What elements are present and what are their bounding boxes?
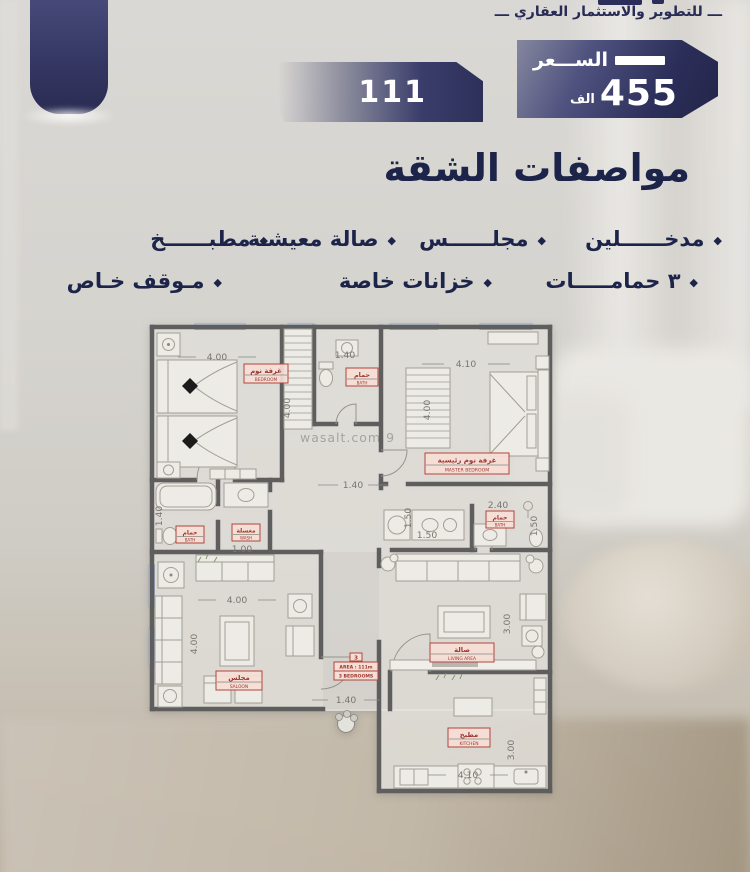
room-label-master: غرفة نوم رئيسية MASTER BEDROOM	[425, 453, 509, 474]
svg-text:BATH: BATH	[495, 523, 506, 528]
svg-text:SALOON: SALOON	[230, 684, 248, 690]
svg-text:حمام: حمام	[354, 371, 370, 379]
floor-plan: wasalt.com 9 غرفة نوم BEDROOM حمام BATH …	[140, 312, 570, 860]
svg-text:مغسلة: مغسلة	[236, 528, 256, 535]
feature-label: خزانات خاصة	[339, 269, 475, 293]
svg-text:غرفة نوم: غرفة نوم	[250, 367, 282, 375]
unit-number-badge: 111	[278, 62, 483, 122]
feature-private-tanks: ◆خزانات خاصة	[339, 269, 492, 293]
entrance-plant-icon	[336, 711, 358, 733]
feature-entrances: ◆مدخــــــلين	[585, 227, 722, 251]
diamond-bullet-icon: ◆	[714, 235, 722, 246]
svg-text:مجلس: مجلس	[228, 674, 250, 682]
room-label-bath-left: حمام BATH	[176, 526, 204, 543]
company-tagline: ـــ للتطوير والاستثمار العقاري ـــ	[495, 4, 722, 20]
svg-text:BATH: BATH	[357, 381, 368, 386]
room-label-living: صالة LIVING AREA	[430, 643, 494, 662]
svg-text:MASTER BEDROOM: MASTER BEDROOM	[445, 468, 489, 474]
svg-text:1.40: 1.40	[335, 350, 356, 361]
background-wall-strip	[0, 0, 18, 430]
feature-label: مـوقف خـاص	[67, 269, 205, 293]
feature-living-hall: ◆صالة معيشـة	[248, 227, 396, 251]
page-title: مواصفات الشقة	[384, 146, 691, 190]
feature-kitchen: ◆مطبــــــخ	[150, 227, 268, 251]
svg-text:غرفة نوم رئيسية: غرفة نوم رئيسية	[438, 457, 497, 465]
feature-majlis: ◆مجلــــــس	[419, 227, 546, 251]
svg-text:1.40: 1.40	[154, 506, 165, 527]
diamond-bullet-icon: ◆	[484, 277, 492, 288]
watermark: wasalt.com 9	[300, 430, 395, 445]
feature-label: مدخــــــلين	[585, 227, 704, 251]
svg-text:4.00: 4.00	[207, 352, 228, 363]
svg-text:4.00: 4.00	[227, 595, 248, 606]
svg-text:2.40: 2.40	[488, 500, 509, 511]
svg-text:1.40: 1.40	[343, 480, 364, 491]
room-label-kitchen: مطبخ KITCHEN	[448, 728, 490, 747]
feature-label: مجلــــــس	[419, 227, 528, 251]
svg-text:BATH: BATH	[185, 538, 196, 543]
svg-text:AREA : 111m: AREA : 111m	[339, 665, 372, 671]
svg-text:حمام: حمام	[493, 515, 508, 522]
svg-text:4.10: 4.10	[456, 359, 477, 370]
svg-text:4.00: 4.00	[422, 400, 433, 421]
room-label-saloon: مجلس SALOON	[216, 671, 262, 690]
feature-private-parking: ◆مـوقف خـاص	[67, 269, 222, 293]
diamond-bullet-icon: ◆	[538, 235, 546, 246]
feature-label: ٣ حمامـــــات	[545, 269, 680, 293]
svg-text:1.50: 1.50	[529, 516, 540, 537]
svg-text:حمام: حمام	[183, 530, 198, 537]
diamond-bullet-icon: ◆	[260, 235, 268, 246]
svg-text:1.50: 1.50	[403, 508, 414, 529]
svg-text:4.00: 4.00	[189, 634, 200, 655]
svg-text:WASH: WASH	[240, 536, 252, 541]
room-label-bath-right: حمام BATH	[486, 511, 514, 528]
svg-text:LIVING AREA: LIVING AREA	[448, 656, 476, 662]
diamond-bullet-icon: ◆	[388, 235, 396, 246]
price-unit: الف	[570, 92, 595, 112]
price-dash-icon	[615, 56, 665, 65]
price-label-row: الســـعر	[533, 49, 665, 71]
price-value: 455	[600, 76, 678, 112]
svg-text:مطبخ: مطبخ	[460, 731, 479, 739]
svg-text:1.40: 1.40	[336, 695, 357, 706]
price-badge: الســـعر الف 455	[517, 40, 718, 118]
svg-text:3 BEDROOMS: 3 BEDROOMS	[339, 674, 373, 680]
room-label-wash: مغسلة WASH	[232, 524, 260, 541]
background-sofa	[552, 348, 750, 526]
room-label-bath-top: حمام BATH	[346, 368, 378, 386]
svg-text:3.00: 3.00	[502, 614, 513, 635]
feature-bathrooms: ◆٣ حمامـــــات	[545, 269, 698, 293]
feature-label: مطبــــــخ	[150, 227, 250, 251]
unit-number: 111	[358, 75, 427, 110]
flyer-canvas: ـــ للتطوير والاستثمار العقاري ـــ الســ…	[0, 0, 750, 872]
price-label: الســـعر	[533, 49, 608, 71]
background-round-table	[563, 540, 750, 690]
svg-text:3.00: 3.00	[506, 740, 517, 761]
price-value-row: الف 455	[570, 76, 678, 112]
room-label-bedroom: غرفة نوم BEDROOM	[244, 364, 288, 383]
svg-text:1.00: 1.00	[232, 544, 253, 555]
svg-text:BEDROOM: BEDROOM	[255, 377, 278, 383]
diamond-bullet-icon: ◆	[690, 277, 698, 288]
svg-text:صالة: صالة	[454, 646, 470, 654]
svg-text:3: 3	[354, 656, 358, 662]
svg-text:1.50: 1.50	[417, 530, 438, 541]
svg-text:4.00: 4.00	[282, 398, 293, 419]
navy-pillar-decor	[30, 0, 108, 114]
svg-text:4.10: 4.10	[458, 770, 479, 781]
svg-text:KITCHEN: KITCHEN	[459, 741, 478, 747]
diamond-bullet-icon: ◆	[214, 277, 222, 288]
